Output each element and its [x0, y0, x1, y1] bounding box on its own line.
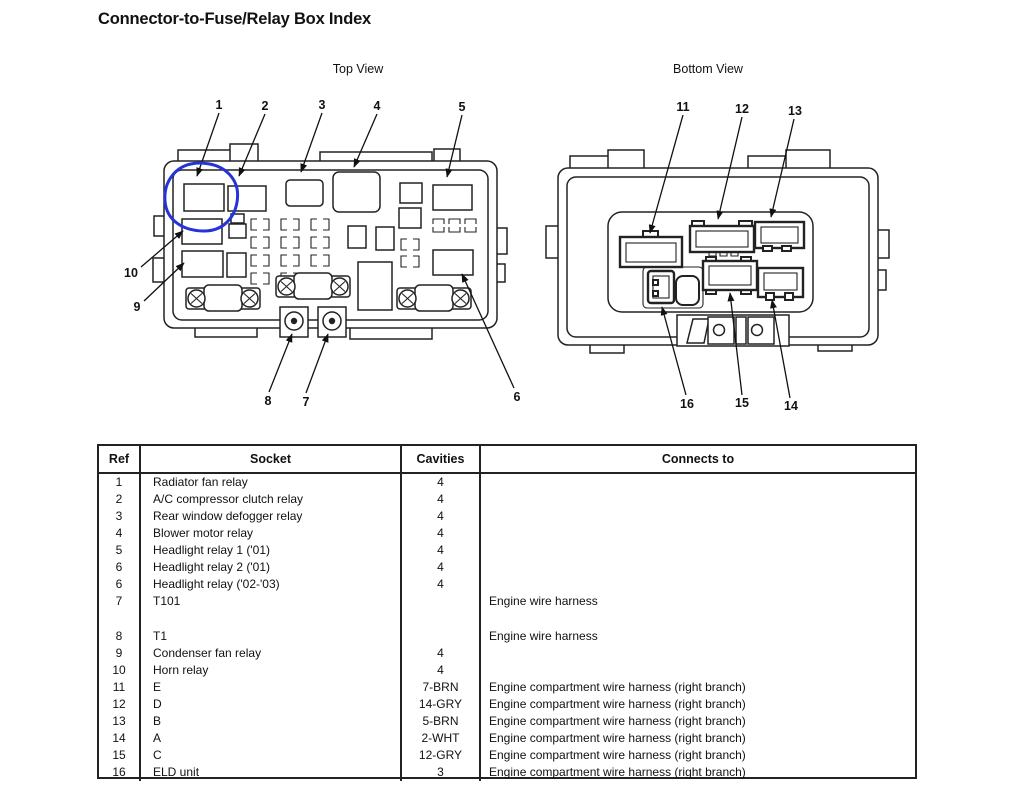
cell-socket: Rear window defogger relay [140, 508, 401, 525]
col-header-ref: Ref [99, 446, 140, 473]
table-row: 6Headlight relay ('02-'03)4 [99, 576, 915, 593]
cell-socket: E [140, 679, 401, 696]
cell-cavities: 4 [401, 473, 480, 491]
cell-connects_to [480, 576, 915, 593]
connector-index-table: Ref Socket Cavities Connects to 1Radiato… [97, 444, 917, 779]
top-view-label: Top View [333, 62, 384, 76]
callout-14-label: 14 [784, 399, 798, 413]
cell-ref: 6 [99, 576, 140, 593]
socket-1-radiator-fan-relay [184, 184, 224, 211]
callout-12-label: 12 [735, 102, 749, 116]
cell-connects_to: Engine compartment wire harness (right b… [480, 713, 915, 730]
callout-16-label: 16 [680, 397, 694, 411]
cell-socket: Headlight relay ('02-'03) [140, 576, 401, 593]
callout-7: 7 [303, 334, 328, 409]
cell-cavities: 4 [401, 525, 480, 542]
cell-ref: 4 [99, 525, 140, 542]
table-row: 9Condenser fan relay4 [99, 645, 915, 662]
index-table-body: 1Radiator fan relay42A/C compressor clut… [99, 473, 915, 781]
table-row: 11E7-BRNEngine compartment wire harness … [99, 679, 915, 696]
table-header-row: Ref Socket Cavities Connects to [99, 446, 915, 473]
cell-socket: T101 [140, 593, 401, 628]
socket-4-blower-relay [333, 172, 380, 212]
cell-socket: Radiator fan relay [140, 473, 401, 491]
cell-socket: Blower motor relay [140, 525, 401, 542]
cell-ref: 8 [99, 628, 140, 645]
cell-cavities: 4 [401, 508, 480, 525]
cell-ref: 1 [99, 473, 140, 491]
socket-2-ac-compressor-relay [228, 186, 266, 211]
cell-socket: Headlight relay 1 ('01) [140, 542, 401, 559]
connector-16 [648, 271, 674, 303]
socket-6-headlight-relay [433, 250, 473, 275]
callout-15-label: 15 [735, 396, 749, 410]
top-view-drawing: 1 2 3 4 5 10 9 8 7 6 [124, 98, 520, 409]
cell-connects_to: Engine wire harness [480, 628, 915, 645]
cell-connects_to: Engine compartment wire harness (right b… [480, 696, 915, 713]
cell-socket: B [140, 713, 401, 730]
connector-11 [620, 231, 682, 267]
cell-socket: A/C compressor clutch relay [140, 491, 401, 508]
cell-connects_to: Engine wire harness [480, 593, 915, 628]
cell-ref: 14 [99, 730, 140, 747]
cell-cavities: 4 [401, 542, 480, 559]
table-row: 7T101Engine wire harness [99, 593, 915, 628]
connector-12 [690, 221, 754, 256]
page: Connector-to-Fuse/Relay Box Index Top Vi… [0, 0, 1018, 800]
cell-ref: 5 [99, 542, 140, 559]
cell-socket: D [140, 696, 401, 713]
cell-socket: ELD unit [140, 764, 401, 781]
cell-ref: 15 [99, 747, 140, 764]
cell-ref: 16 [99, 764, 140, 781]
cell-ref: 11 [99, 679, 140, 696]
table-row: 3Rear window defogger relay4 [99, 508, 915, 525]
cell-connects_to [480, 559, 915, 576]
table-row: 8T1Engine wire harness [99, 628, 915, 645]
socket-9-condenser-fan-relay [182, 251, 223, 277]
cell-connects_to [480, 662, 915, 679]
socket-5-headlight-relay [433, 185, 472, 210]
cell-cavities: 7-BRN [401, 679, 480, 696]
cell-socket: A [140, 730, 401, 747]
cell-cavities: 4 [401, 662, 480, 679]
table-row: 1Radiator fan relay4 [99, 473, 915, 491]
cell-ref: 13 [99, 713, 140, 730]
cell-cavities [401, 628, 480, 645]
cell-connects_to [480, 645, 915, 662]
bottom-view-drawing: 11 12 13 16 15 14 [546, 100, 889, 413]
cell-connects_to [480, 491, 915, 508]
table-row: 4Blower motor relay4 [99, 525, 915, 542]
callout-11-label: 11 [676, 100, 689, 114]
cell-cavities [401, 593, 480, 628]
cell-cavities: 5-BRN [401, 713, 480, 730]
cell-connects_to [480, 473, 915, 491]
connector-14 [758, 268, 803, 300]
page-title: Connector-to-Fuse/Relay Box Index [98, 10, 371, 29]
cell-connects_to [480, 525, 915, 542]
callout-4-label: 4 [374, 99, 381, 113]
callout-13-label: 13 [788, 104, 802, 118]
callout-9-label: 9 [134, 300, 141, 314]
callout-7-label: 7 [303, 395, 310, 409]
callout-5-label: 5 [459, 100, 466, 114]
table-row: 15C12-GRYEngine compartment wire harness… [99, 747, 915, 764]
cell-ref: 10 [99, 662, 140, 679]
connector-13 [755, 222, 804, 251]
cell-connects_to [480, 508, 915, 525]
cell-socket: Condenser fan relay [140, 645, 401, 662]
connector-16-neighbor [676, 276, 699, 305]
cell-connects_to: Engine compartment wire harness (right b… [480, 747, 915, 764]
table-row: 14A2-WHTEngine compartment wire harness … [99, 730, 915, 747]
cell-cavities: 4 [401, 491, 480, 508]
cell-connects_to: Engine compartment wire harness (right b… [480, 730, 915, 747]
cell-connects_to [480, 542, 915, 559]
cell-cavities: 4 [401, 645, 480, 662]
col-header-connects-to: Connects to [480, 446, 915, 473]
cell-ref: 2 [99, 491, 140, 508]
connector-15 [703, 257, 757, 294]
cell-ref: 9 [99, 645, 140, 662]
callout-3-label: 3 [319, 98, 326, 112]
cell-cavities: 4 [401, 576, 480, 593]
cell-ref: 6 [99, 559, 140, 576]
cell-connects_to: Engine compartment wire harness (right b… [480, 764, 915, 781]
table-row: 12D14-GRYEngine compartment wire harness… [99, 696, 915, 713]
cell-ref: 3 [99, 508, 140, 525]
cell-socket: T1 [140, 628, 401, 645]
table-row: 13B5-BRNEngine compartment wire harness … [99, 713, 915, 730]
table-row: 6Headlight relay 2 ('01)4 [99, 559, 915, 576]
callout-6-label: 6 [514, 390, 521, 404]
table-row: 2A/C compressor clutch relay4 [99, 491, 915, 508]
table-row: 5Headlight relay 1 ('01)4 [99, 542, 915, 559]
cell-cavities: 4 [401, 559, 480, 576]
callout-2-label: 2 [262, 99, 269, 113]
cell-ref: 12 [99, 696, 140, 713]
cell-cavities: 3 [401, 764, 480, 781]
col-header-cavities: Cavities [401, 446, 480, 473]
table-row: 10Horn relay4 [99, 662, 915, 679]
cell-cavities: 12-GRY [401, 747, 480, 764]
fuse-relay-box-diagram: 1 2 3 4 5 10 9 8 7 6 [95, 80, 965, 430]
callout-8: 8 [265, 334, 292, 408]
socket-3-defogger-relay [286, 180, 323, 206]
cell-cavities: 14-GRY [401, 696, 480, 713]
callout-1-label: 1 [216, 98, 223, 112]
cell-socket: Headlight relay 2 ('01) [140, 559, 401, 576]
cell-cavities: 2-WHT [401, 730, 480, 747]
cell-socket: Horn relay [140, 662, 401, 679]
table-row: 16ELD unit3Engine compartment wire harne… [99, 764, 915, 781]
cell-ref: 7 [99, 593, 140, 628]
callout-10-label: 10 [124, 266, 138, 280]
cell-connects_to: Engine compartment wire harness (right b… [480, 679, 915, 696]
cell-socket: C [140, 747, 401, 764]
col-header-socket: Socket [140, 446, 401, 473]
callout-8-label: 8 [265, 394, 272, 408]
bottom-view-label: Bottom View [673, 62, 743, 76]
